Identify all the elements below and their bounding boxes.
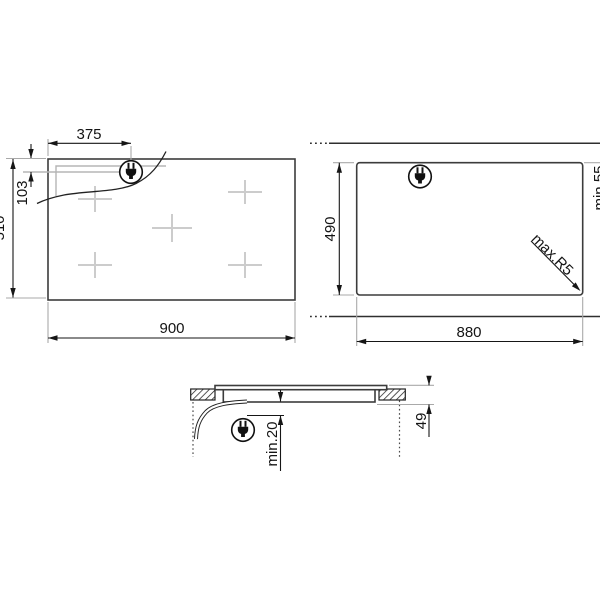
dim-hob-width: 900: [48, 302, 295, 343]
cutout-plan-view: 490 880 max.R5 min 55: [310, 143, 600, 346]
hob-plan-view: 375 103 510 900: [0, 126, 295, 343]
dim-cutout-width: 880: [357, 297, 583, 346]
dim-label-880: 880: [456, 324, 481, 341]
dim-label-490: 490: [322, 216, 339, 241]
dim-label-49: 49: [413, 413, 430, 430]
power-plug-icon: [409, 165, 432, 188]
note-label-min-55: min 55: [591, 165, 600, 210]
rear-clearance-note: min 55: [584, 163, 600, 211]
dim-hob-depth: 510: [0, 159, 46, 299]
worktop-section-right: [379, 389, 405, 400]
dim-label-min-20: min.20: [264, 421, 281, 466]
dim-label-375: 375: [76, 126, 101, 143]
dim-label-900: 900: [159, 320, 184, 337]
dim-plug-offset-x: 375: [48, 126, 131, 160]
dim-plug-offset-y: 103: [14, 144, 34, 206]
worktop-section-left: [191, 389, 215, 400]
cabinet-dotted-lines: [193, 401, 400, 458]
dim-label-103: 103: [14, 180, 31, 205]
power-plug-icon: [232, 419, 255, 442]
power-plug-icon: [120, 161, 143, 184]
hob-glass-top: [215, 386, 387, 390]
installation-drawing: 375 103 510 900: [0, 0, 600, 600]
cutout-outline: [357, 163, 583, 295]
dim-cutout-depth: 490: [322, 163, 354, 295]
installation-section-view: min.20 49: [191, 376, 434, 471]
dim-label-510: 510: [0, 215, 8, 240]
